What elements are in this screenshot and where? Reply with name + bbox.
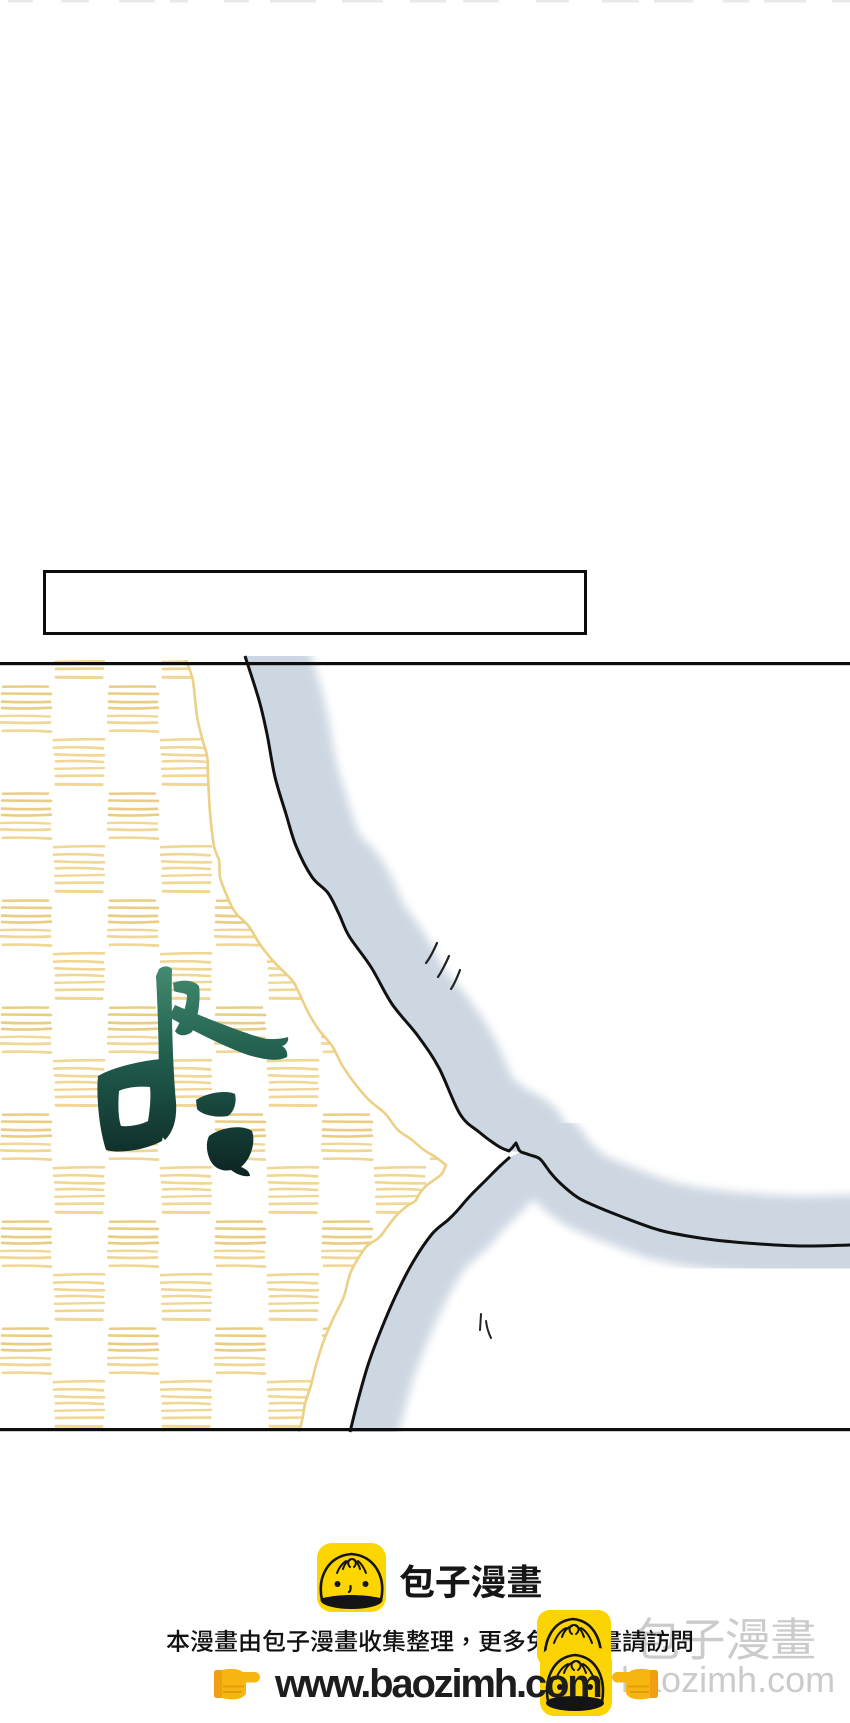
svg-text:www.baozimh.com: www.baozimh.com xyxy=(274,1662,601,1706)
